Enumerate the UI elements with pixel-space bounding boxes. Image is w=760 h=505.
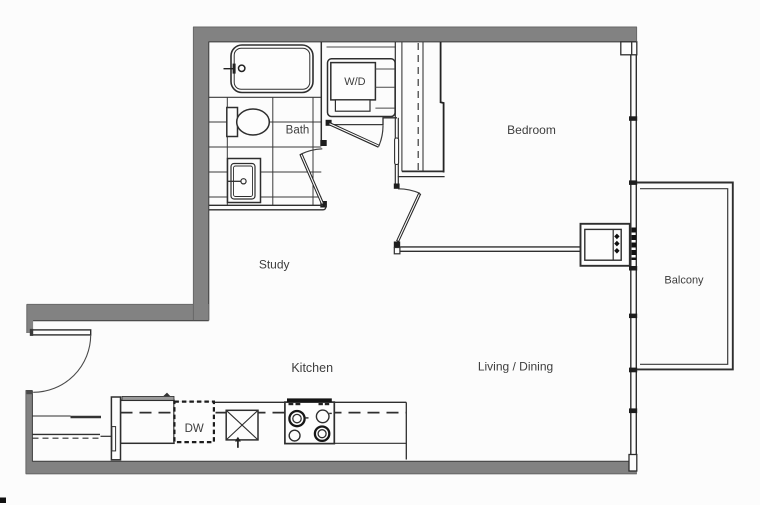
svg-text:Bath: Bath [286, 124, 310, 136]
svg-text:Bedroom: Bedroom [507, 123, 556, 137]
svg-text:Living / Dining: Living / Dining [478, 360, 553, 374]
svg-text:W/D: W/D [344, 76, 365, 88]
svg-text:DW: DW [185, 423, 204, 435]
svg-text:Balcony: Balcony [664, 274, 704, 286]
svg-text:Study: Study [259, 257, 290, 271]
svg-text:Kitchen: Kitchen [291, 361, 333, 375]
